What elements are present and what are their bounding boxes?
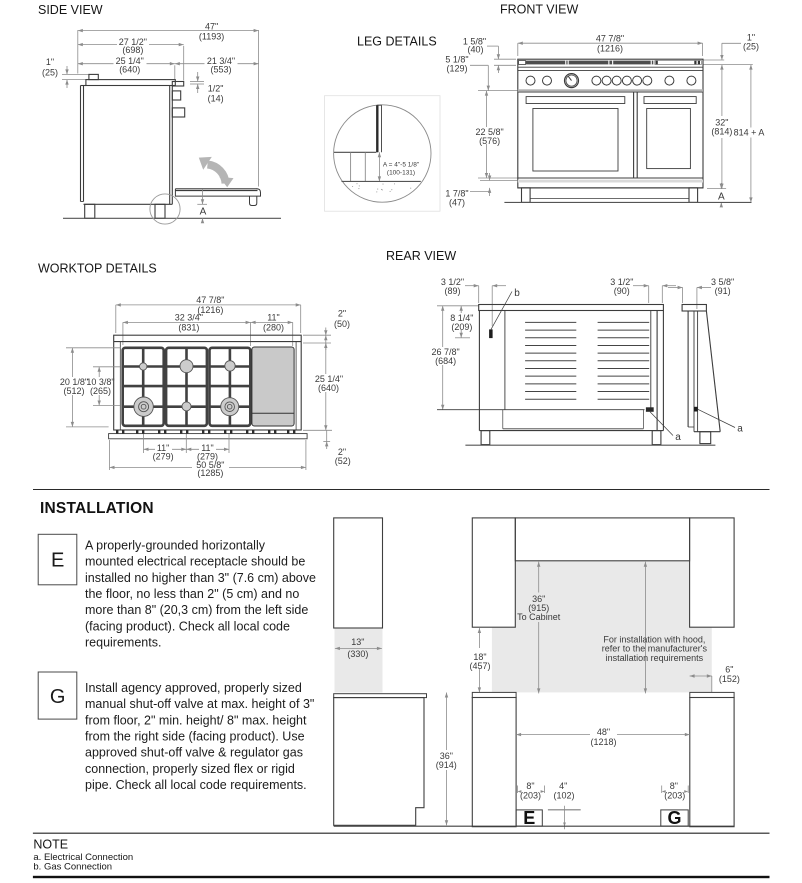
svg-text:6": 6": [725, 665, 733, 675]
svg-text:32 3/4": 32 3/4": [175, 313, 203, 323]
svg-text:WORKTOP DETAILS: WORKTOP DETAILS: [38, 262, 157, 276]
svg-text:814 + A: 814 + A: [734, 128, 765, 138]
svg-text:requirements.: requirements.: [85, 635, 161, 649]
svg-text:48": 48": [597, 727, 610, 737]
svg-text:8": 8": [670, 781, 678, 791]
svg-text:b. Gas Connection: b. Gas Connection: [33, 862, 112, 873]
svg-text:(152): (152): [719, 674, 740, 684]
svg-text:installation requirements: installation requirements: [606, 653, 704, 663]
svg-text:2": 2": [338, 309, 346, 319]
svg-text:To Cabinet: To Cabinet: [517, 612, 561, 622]
svg-text:47": 47": [205, 21, 218, 31]
svg-text:(831): (831): [178, 323, 199, 333]
svg-text:(814): (814): [711, 127, 732, 137]
svg-text:the floor, no less than 2" (5: the floor, no less than 2" (5 cm) and no: [85, 587, 299, 601]
svg-text:pipe. Check all local code req: pipe. Check all local code requirements.: [85, 778, 307, 792]
svg-text:A: A: [200, 207, 207, 218]
svg-text:(91): (91): [715, 286, 731, 296]
svg-text:G: G: [667, 808, 681, 828]
svg-text:mounted electrical receptacle: mounted electrical receptacle should be: [85, 555, 305, 569]
svg-text:approved shut-off valve & regu: approved shut-off valve & regulator gas: [85, 746, 303, 760]
svg-text:(1193): (1193): [199, 32, 224, 42]
svg-text:(330): (330): [347, 649, 368, 659]
svg-text:47 7/8": 47 7/8": [196, 295, 224, 305]
svg-text:(25): (25): [42, 68, 58, 78]
svg-text:13": 13": [351, 637, 364, 647]
svg-text:(576): (576): [479, 136, 500, 146]
svg-text:LEG DETAILS: LEG DETAILS: [357, 35, 437, 49]
svg-text:(52): (52): [335, 456, 351, 466]
svg-text:(129): (129): [446, 64, 467, 74]
svg-text:(684): (684): [435, 356, 456, 366]
svg-text:from floor, 2" min. height/ 8": from floor, 2" min. height/ 8" max. heig…: [85, 713, 307, 727]
svg-text:a: a: [737, 424, 743, 435]
svg-text:more than 8" (20,3 cm) from th: more than 8" (20,3 cm) from the left sid…: [85, 603, 308, 617]
svg-text:(14): (14): [208, 94, 224, 104]
svg-text:A = 4"-5 1/8": A = 4"-5 1/8": [383, 162, 420, 169]
svg-text:(280): (280): [263, 323, 284, 333]
svg-text:(100-131): (100-131): [387, 170, 415, 177]
svg-text:(279): (279): [153, 452, 174, 462]
svg-text:manual shut-off valve at max.: manual shut-off valve at max. height of …: [85, 697, 314, 711]
svg-text:(512): (512): [63, 386, 84, 396]
svg-text:(25): (25): [743, 42, 759, 52]
svg-text:(1218): (1218): [590, 737, 616, 747]
svg-text:(89): (89): [444, 286, 460, 296]
svg-text:8": 8": [526, 781, 534, 791]
svg-text:(50): (50): [334, 319, 350, 329]
svg-text:(1216): (1216): [597, 44, 623, 54]
svg-text:b: b: [514, 288, 520, 299]
svg-text:11": 11": [267, 313, 280, 323]
svg-text:47 7/8": 47 7/8": [596, 34, 624, 44]
svg-text:(457): (457): [469, 661, 490, 671]
svg-text:FRONT VIEW: FRONT VIEW: [500, 3, 578, 17]
svg-text:installed no higher than 3" (7: installed no higher than 3" (7.6 cm) abo…: [85, 571, 316, 585]
svg-text:connection, properly sized fle: connection, properly sized flex or rigid: [85, 762, 295, 776]
svg-text:(640): (640): [119, 64, 140, 74]
svg-text:SIDE VIEW: SIDE VIEW: [38, 3, 103, 17]
svg-text:(553): (553): [210, 64, 231, 74]
svg-text:(47): (47): [449, 198, 465, 208]
svg-text:(640): (640): [318, 383, 339, 393]
svg-text:(203): (203): [664, 791, 685, 801]
svg-text:(209): (209): [451, 322, 472, 332]
svg-text:A: A: [718, 192, 725, 203]
svg-text:NOTE: NOTE: [33, 838, 68, 852]
svg-text:(265): (265): [90, 386, 111, 396]
svg-text:1/2": 1/2": [208, 84, 224, 94]
svg-text:G: G: [50, 686, 66, 708]
svg-text:E: E: [51, 550, 64, 572]
svg-text:A properly-grounded horizontal: A properly-grounded horizontally: [85, 539, 266, 553]
svg-text:INSTALLATION: INSTALLATION: [40, 500, 154, 517]
svg-text:4": 4": [559, 781, 567, 791]
svg-text:a: a: [675, 432, 681, 443]
svg-text:(40): (40): [467, 45, 483, 55]
svg-text:(1285): (1285): [197, 468, 223, 478]
svg-text:E: E: [523, 808, 535, 828]
svg-text:REAR VIEW: REAR VIEW: [386, 249, 456, 263]
svg-text:(facing product). Check all lo: (facing product). Check all local code: [85, 619, 290, 633]
svg-text:(203): (203): [520, 791, 541, 801]
svg-text:(698): (698): [122, 45, 143, 55]
svg-text:(90): (90): [614, 286, 630, 296]
svg-text:Install agency approved, prope: Install agency approved, properly sized: [85, 681, 302, 695]
svg-text:from the right side (facing pr: from the right side (facing product). Us…: [85, 729, 305, 743]
svg-text:1": 1": [46, 57, 54, 67]
svg-text:(102): (102): [553, 791, 574, 801]
svg-text:(914): (914): [436, 760, 457, 770]
